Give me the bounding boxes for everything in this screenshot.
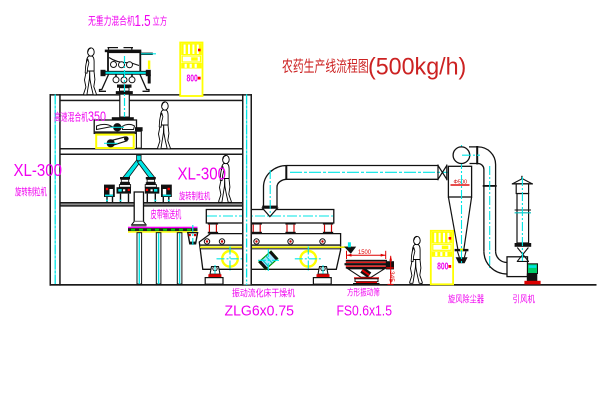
svg-text:1500: 1500 xyxy=(358,249,372,256)
svg-text:345: 345 xyxy=(388,271,395,282)
svg-text:方形振动筛: 方形振动筛 xyxy=(347,286,380,297)
svg-text:农药生产线流程图: 农药生产线流程图 xyxy=(282,58,369,75)
svg-text:无重力混合机: 无重力混合机 xyxy=(88,14,135,28)
svg-text:FS0.6x1.5: FS0.6x1.5 xyxy=(337,303,392,319)
svg-text:(500kg/h): (500kg/h) xyxy=(368,54,466,80)
svg-text:皮带输送机: 皮带输送机 xyxy=(151,207,182,221)
svg-text:引风机: 引风机 xyxy=(513,293,536,305)
svg-text:旋转制粒机: 旋转制粒机 xyxy=(15,186,47,198)
svg-text:1.5: 1.5 xyxy=(135,12,151,29)
svg-text:ZLG6x0.75: ZLG6x0.75 xyxy=(225,303,295,319)
svg-text:XL-300: XL-300 xyxy=(14,161,63,180)
svg-text:立方: 立方 xyxy=(153,14,168,27)
svg-text:旋风除尘器: 旋风除尘器 xyxy=(448,293,485,304)
svg-text:高速混合机: 高速混合机 xyxy=(54,110,88,123)
svg-text:XL-300: XL-300 xyxy=(178,164,227,183)
svg-text:旋转制粒机: 旋转制粒机 xyxy=(179,190,210,202)
svg-text:350: 350 xyxy=(88,109,106,124)
svg-text:振动流化床干燥机: 振动流化床干燥机 xyxy=(232,287,295,299)
